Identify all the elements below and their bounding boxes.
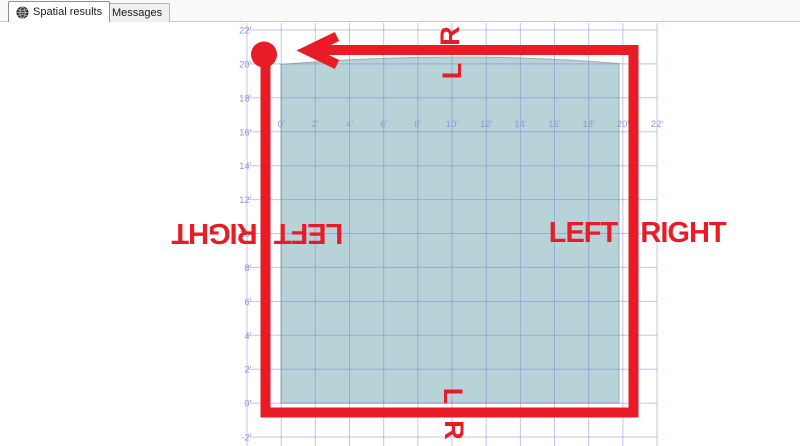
- svg-text:6': 6': [244, 297, 251, 308]
- y-axis-labels: 22'20'18'16'14'12'10'8'6'4'2'0'-2': [239, 26, 252, 444]
- globe-icon: [16, 6, 29, 19]
- svg-text:2': 2': [312, 119, 319, 130]
- svg-text:16': 16': [239, 127, 252, 138]
- svg-text:18': 18': [583, 119, 596, 130]
- svg-text:8': 8': [244, 263, 251, 274]
- svg-text:14': 14': [239, 161, 252, 172]
- svg-text:12': 12': [239, 195, 252, 206]
- svg-text:16': 16': [548, 119, 561, 130]
- spatial-results-pane: Spatial results Messages 22'20'18'16'14'…: [0, 0, 800, 446]
- tab-spatial-results[interactable]: Spatial results: [8, 1, 110, 22]
- svg-text:8': 8': [414, 119, 421, 130]
- svg-text:6': 6': [380, 119, 387, 130]
- tab-messages-label: Messages: [112, 7, 162, 19]
- svg-text:20': 20': [617, 119, 630, 130]
- svg-text:18': 18': [239, 93, 252, 104]
- svg-text:14': 14': [514, 119, 527, 130]
- svg-text:4': 4': [244, 331, 251, 342]
- svg-text:22': 22': [651, 119, 664, 130]
- svg-text:20': 20': [239, 59, 252, 70]
- spatial-plot-canvas: 22'20'18'16'14'12'10'8'6'4'2'0'-2'0'2'4'…: [0, 0, 800, 446]
- svg-text:0': 0': [244, 399, 251, 410]
- tab-spatial-results-label: Spatial results: [33, 6, 102, 18]
- svg-text:0': 0': [278, 119, 285, 130]
- svg-text:10': 10': [239, 229, 252, 240]
- svg-text:-2': -2': [241, 433, 251, 444]
- svg-text:2': 2': [244, 365, 251, 376]
- results-tab-bar: Spatial results Messages: [0, 0, 800, 22]
- svg-text:22': 22': [239, 26, 252, 37]
- svg-text:4': 4': [346, 119, 353, 130]
- svg-text:12': 12': [480, 119, 493, 130]
- svg-text:10': 10': [446, 119, 459, 130]
- route-start-dot: [251, 42, 277, 68]
- shape-polygon: [281, 57, 619, 403]
